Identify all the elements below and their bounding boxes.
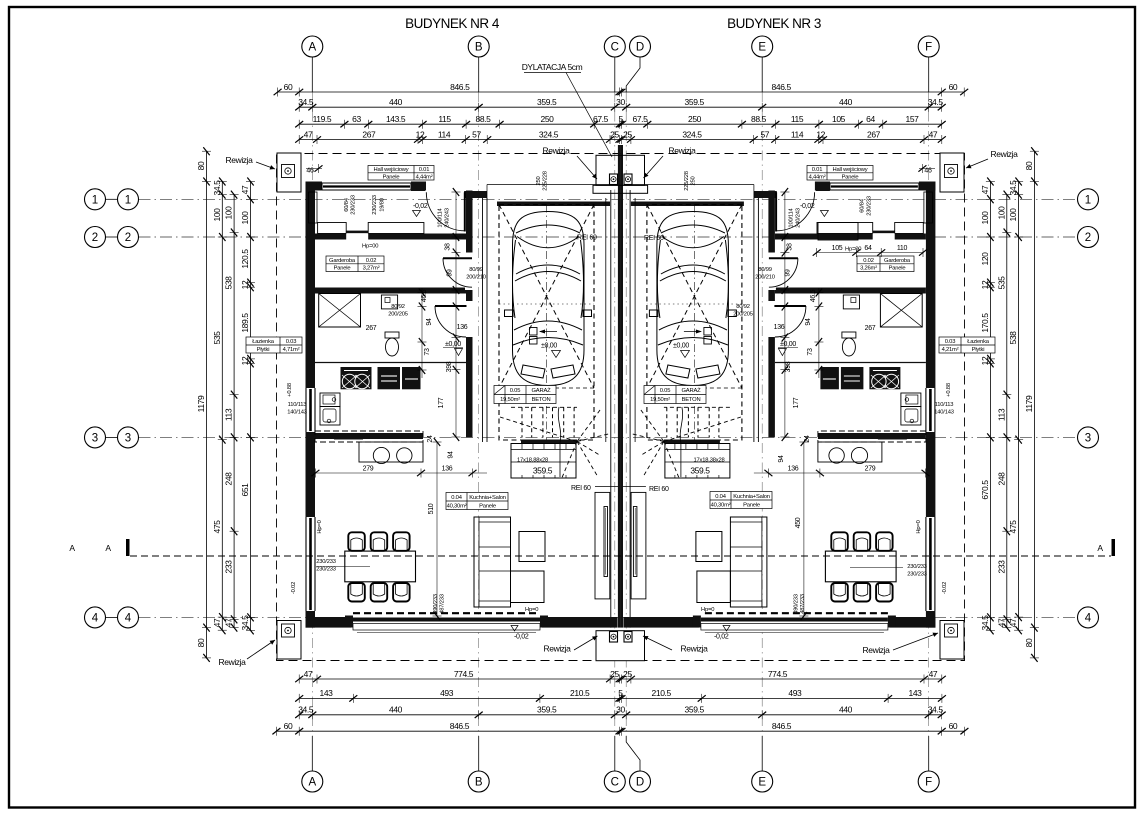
svg-text:12: 12 [816, 129, 825, 139]
svg-text:225/228: 225/228 [543, 171, 549, 191]
svg-text:-0,02: -0,02 [413, 203, 428, 210]
svg-text:250: 250 [688, 114, 702, 124]
svg-text:REI 60: REI 60 [571, 485, 591, 492]
svg-text:225/228: 225/228 [684, 171, 690, 191]
svg-text:Rewizja: Rewizja [544, 644, 572, 654]
svg-text:143: 143 [909, 688, 923, 698]
svg-text:46.5: 46.5 [810, 289, 817, 302]
svg-text:359.5: 359.5 [685, 97, 705, 107]
svg-text:0.05: 0.05 [660, 388, 670, 394]
svg-text:200/205: 200/205 [388, 312, 408, 318]
svg-text:Panele: Panele [842, 175, 859, 181]
svg-text:94: 94 [448, 451, 455, 459]
svg-text:BUDYNEK NR 3: BUDYNEK NR 3 [727, 16, 821, 31]
svg-text:80/99: 80/99 [758, 267, 772, 273]
svg-text:200/205: 200/205 [733, 312, 753, 318]
svg-text:535: 535 [996, 276, 1006, 290]
svg-text:0.04: 0.04 [715, 494, 726, 500]
svg-text:A: A [308, 42, 316, 54]
svg-text:1179: 1179 [1024, 395, 1034, 412]
svg-text:2: 2 [125, 232, 131, 244]
svg-text:Panele: Panele [743, 502, 760, 508]
svg-text:12: 12 [980, 280, 990, 289]
svg-text:5: 5 [618, 688, 623, 698]
svg-text:25: 25 [623, 129, 632, 139]
svg-text:Garderoba: Garderoba [884, 258, 911, 264]
svg-text:100/114: 100/114 [788, 207, 794, 227]
svg-text:25: 25 [610, 669, 619, 679]
svg-text:Panele: Panele [383, 175, 400, 181]
svg-text:100: 100 [996, 206, 1006, 220]
svg-text:100: 100 [212, 208, 222, 222]
svg-text:3: 3 [92, 432, 98, 444]
svg-text:BETON: BETON [532, 397, 551, 403]
svg-text:157: 157 [906, 114, 920, 124]
svg-text:140/143: 140/143 [934, 410, 954, 416]
svg-text:80/92: 80/92 [391, 304, 405, 310]
svg-text:D: D [636, 42, 644, 54]
svg-text:2: 2 [1085, 232, 1091, 244]
svg-text:136: 136 [788, 466, 799, 473]
svg-text:230/233: 230/233 [372, 195, 378, 215]
svg-text:538: 538 [1008, 331, 1018, 345]
svg-text:REI 60: REI 60 [577, 235, 597, 242]
svg-text:17x18,38x28: 17x18,38x28 [694, 458, 725, 464]
svg-text:177: 177 [438, 397, 445, 408]
svg-text:Hp=00: Hp=00 [845, 247, 861, 253]
svg-text:240/243: 240/243 [795, 208, 801, 228]
svg-text:490/233: 490/233 [433, 594, 439, 614]
svg-text:279: 279 [865, 466, 876, 473]
svg-text:+0.88: +0.88 [946, 383, 952, 397]
svg-text:80: 80 [1024, 161, 1034, 170]
svg-text:3,26m²: 3,26m² [860, 266, 877, 272]
svg-text:A: A [69, 543, 75, 553]
svg-text:359.5: 359.5 [533, 466, 553, 476]
svg-text:3,27m²: 3,27m² [363, 266, 380, 272]
svg-text:100: 100 [240, 211, 250, 225]
svg-text:4: 4 [92, 612, 99, 624]
svg-text:1179: 1179 [196, 395, 206, 412]
svg-text:F: F [925, 777, 932, 789]
svg-text:BETON: BETON [682, 397, 701, 403]
svg-text:24: 24 [427, 435, 434, 443]
svg-text:189.5: 189.5 [240, 313, 250, 333]
svg-text:359.5: 359.5 [690, 466, 710, 476]
svg-text:Hp=00: Hp=00 [362, 244, 378, 250]
svg-text:493: 493 [440, 688, 454, 698]
svg-text:143.5: 143.5 [386, 114, 406, 124]
svg-text:47: 47 [224, 618, 234, 627]
svg-text:113: 113 [224, 408, 234, 421]
svg-text:Garderoba: Garderoba [329, 258, 356, 264]
svg-text:230/233: 230/233 [907, 564, 927, 570]
svg-text:0.05: 0.05 [510, 388, 520, 394]
svg-text:774.5: 774.5 [768, 669, 788, 679]
svg-text:40,30m²: 40,30m² [447, 503, 467, 509]
svg-text:510: 510 [428, 503, 435, 514]
svg-text:94: 94 [805, 318, 812, 326]
svg-text:47: 47 [929, 129, 938, 139]
svg-text:64: 64 [866, 114, 875, 124]
svg-text:267: 267 [366, 325, 377, 332]
svg-text:487/233: 487/233 [800, 594, 806, 614]
svg-text:63: 63 [352, 114, 361, 124]
svg-text:19/80: 19/80 [380, 198, 386, 212]
svg-text:99: 99 [785, 269, 792, 277]
svg-text:Łazienka: Łazienka [252, 339, 275, 345]
svg-text:34.5: 34.5 [928, 705, 944, 715]
svg-text:846.5: 846.5 [772, 82, 792, 92]
svg-text:60: 60 [284, 721, 293, 731]
svg-text:88.5: 88.5 [751, 114, 767, 124]
svg-text:Panele: Panele [334, 266, 351, 272]
svg-text:Hall wejściowy: Hall wejściowy [833, 167, 868, 173]
svg-text:GARAŻ: GARAŻ [682, 387, 702, 394]
svg-text:Rewizja: Rewizja [681, 644, 709, 654]
svg-text:398: 398 [785, 361, 792, 372]
svg-text:200/210: 200/210 [466, 275, 486, 281]
svg-text:34.5: 34.5 [298, 705, 314, 715]
svg-text:248: 248 [996, 472, 1006, 486]
svg-text:0.04: 0.04 [451, 495, 462, 501]
svg-text:Panele: Panele [479, 503, 496, 509]
svg-text:4: 4 [125, 612, 132, 624]
svg-text:1: 1 [125, 194, 131, 206]
svg-text:47: 47 [240, 185, 250, 194]
svg-text:60/84: 60/84 [344, 197, 350, 211]
svg-text:80/99: 80/99 [469, 267, 483, 273]
svg-text:279: 279 [363, 466, 374, 473]
svg-text:±0,00: ±0,00 [445, 341, 461, 348]
svg-text:±0,00: ±0,00 [780, 341, 796, 348]
svg-text:267: 267 [865, 325, 876, 332]
svg-text:25: 25 [623, 669, 632, 679]
svg-text:230/233: 230/233 [351, 195, 357, 215]
svg-text:100: 100 [1008, 208, 1018, 222]
svg-text:38: 38 [445, 243, 452, 251]
svg-text:136: 136 [774, 324, 785, 331]
svg-text:60: 60 [949, 721, 958, 731]
svg-text:88.5: 88.5 [476, 114, 492, 124]
svg-text:47: 47 [980, 185, 990, 194]
svg-text:80/92: 80/92 [736, 304, 750, 310]
svg-text:4,44m²: 4,44m² [809, 175, 826, 181]
svg-text:140/143: 140/143 [287, 410, 307, 416]
svg-text:535: 535 [212, 331, 222, 345]
svg-text:490/233: 490/233 [794, 594, 800, 614]
svg-text:100/114: 100/114 [438, 207, 444, 227]
svg-text:0.03: 0.03 [945, 339, 955, 345]
svg-text:230/233: 230/233 [907, 572, 927, 578]
svg-text:80: 80 [196, 161, 206, 170]
svg-text:2: 2 [92, 232, 98, 244]
svg-text:57: 57 [472, 129, 481, 139]
svg-text:24: 24 [804, 435, 811, 443]
svg-text:Łazienka: Łazienka [967, 339, 990, 345]
svg-text:Płytki: Płytki [972, 347, 985, 353]
svg-text:94: 94 [426, 318, 433, 326]
svg-text:E: E [758, 777, 766, 789]
svg-text:38: 38 [787, 243, 794, 251]
svg-text:475: 475 [212, 520, 222, 534]
svg-text:A: A [308, 777, 316, 789]
svg-text:136: 136 [457, 324, 468, 331]
svg-text:-0,02: -0,02 [714, 634, 729, 641]
svg-text:94: 94 [778, 455, 785, 463]
svg-text:Hall wejściowy: Hall wejściowy [374, 167, 409, 173]
svg-text:30: 30 [616, 705, 625, 715]
svg-text:Hp=0: Hp=0 [317, 520, 323, 533]
svg-text:250: 250 [541, 114, 555, 124]
svg-text:3: 3 [125, 432, 131, 444]
svg-text:493: 493 [788, 688, 802, 698]
svg-text:110/113: 110/113 [288, 402, 307, 408]
svg-text:120.5: 120.5 [240, 249, 250, 269]
svg-text:114: 114 [791, 129, 804, 139]
svg-text:4,44m²: 4,44m² [416, 175, 433, 181]
svg-text:774.5: 774.5 [454, 669, 474, 679]
svg-text:19,50m²: 19,50m² [650, 397, 670, 403]
svg-text:-0.02: -0.02 [942, 582, 948, 594]
svg-text:19,50m²: 19,50m² [500, 397, 520, 403]
svg-text:5: 5 [619, 114, 624, 124]
svg-text:440: 440 [389, 705, 403, 715]
svg-text:651: 651 [240, 483, 250, 497]
svg-text:4: 4 [1085, 612, 1092, 624]
svg-text:3: 3 [1085, 432, 1091, 444]
svg-text:Hp=0: Hp=0 [916, 520, 922, 533]
svg-text:Hp=0: Hp=0 [525, 607, 538, 613]
svg-text:Płytki: Płytki [257, 347, 270, 353]
svg-text:-0,02: -0,02 [514, 634, 529, 641]
svg-text:47: 47 [929, 669, 938, 679]
svg-text:Hp=0: Hp=0 [701, 607, 714, 613]
svg-text:Kuchnia+Salon: Kuchnia+Salon [733, 494, 770, 500]
svg-text:230/233: 230/233 [316, 559, 336, 565]
svg-text:Kuchnia+Salon: Kuchnia+Salon [469, 495, 506, 501]
svg-text:440: 440 [839, 97, 853, 107]
svg-text:0.02: 0.02 [863, 258, 873, 264]
svg-text:230/233: 230/233 [316, 567, 336, 573]
svg-text:60/84: 60/84 [860, 198, 866, 212]
svg-text:398: 398 [446, 361, 453, 372]
svg-text:359.5: 359.5 [685, 705, 705, 715]
svg-text:233: 233 [224, 560, 234, 574]
svg-text:250: 250 [536, 176, 542, 185]
svg-text:25: 25 [610, 129, 619, 139]
svg-text:114: 114 [438, 129, 451, 139]
svg-text:487/233: 487/233 [440, 594, 446, 614]
svg-text:34.5: 34.5 [1008, 180, 1018, 196]
svg-text:1: 1 [92, 194, 98, 206]
svg-text:Rewizja: Rewizja [669, 146, 697, 156]
svg-text:+0.88: +0.88 [287, 383, 293, 397]
svg-text:230/233: 230/233 [867, 196, 873, 216]
svg-text:324.5: 324.5 [539, 129, 559, 139]
svg-text:115: 115 [438, 114, 451, 124]
svg-text:Rewizja: Rewizja [543, 146, 571, 156]
svg-text:105: 105 [832, 245, 843, 252]
svg-text:100: 100 [980, 211, 990, 225]
svg-text:359.5: 359.5 [537, 705, 557, 715]
svg-text:34.5: 34.5 [298, 97, 314, 107]
svg-text:233: 233 [996, 560, 1006, 574]
svg-text:Rewizja: Rewizja [219, 657, 247, 667]
svg-text:12: 12 [240, 280, 250, 289]
svg-text:REI 60: REI 60 [649, 486, 669, 493]
svg-text:B: B [475, 42, 483, 54]
svg-text:47: 47 [304, 129, 313, 139]
svg-text:47: 47 [996, 618, 1006, 627]
svg-text:100: 100 [224, 206, 234, 220]
svg-text:4,21m²: 4,21m² [942, 347, 959, 353]
svg-text:A: A [1097, 543, 1103, 553]
svg-text:40,30m²: 40,30m² [711, 502, 731, 508]
svg-text:30: 30 [616, 97, 625, 107]
svg-text:115: 115 [791, 114, 804, 124]
svg-text:GARAŻ: GARAŻ [532, 387, 552, 394]
svg-text:C: C [611, 777, 619, 789]
svg-text:60: 60 [949, 82, 958, 92]
svg-text:177: 177 [793, 397, 800, 408]
svg-text:34.5: 34.5 [240, 615, 250, 631]
svg-text:±0,00: ±0,00 [541, 343, 557, 350]
svg-text:1: 1 [1085, 194, 1091, 206]
svg-text:REI 60: REI 60 [644, 235, 664, 242]
svg-text:-0.02: -0.02 [291, 582, 297, 594]
svg-text:Panele: Panele [889, 266, 906, 272]
svg-text:119.5: 119.5 [313, 114, 332, 124]
svg-text:267: 267 [362, 129, 376, 139]
svg-text:64: 64 [864, 245, 872, 252]
svg-text:E: E [758, 42, 766, 54]
svg-text:80: 80 [1024, 638, 1034, 647]
svg-text:105: 105 [832, 114, 846, 124]
svg-text:47: 47 [304, 669, 313, 679]
svg-text:60: 60 [284, 82, 293, 92]
svg-text:12: 12 [416, 129, 425, 139]
svg-text:120: 120 [980, 252, 990, 266]
svg-text:34.5: 34.5 [928, 97, 944, 107]
svg-text:80: 80 [196, 638, 206, 647]
svg-text:DYLATACJA 5cm: DYLATACJA 5cm [522, 62, 583, 72]
svg-text:BUDYNEK NR 4: BUDYNEK NR 4 [405, 16, 500, 31]
svg-text:210.5: 210.5 [652, 688, 672, 698]
svg-text:Rewizja: Rewizja [991, 149, 1019, 159]
svg-text:67.5: 67.5 [593, 114, 609, 124]
svg-text:250: 250 [691, 176, 697, 185]
svg-text:±0,00: ±0,00 [673, 343, 689, 350]
svg-text:248: 248 [224, 472, 234, 486]
svg-text:538: 538 [224, 276, 234, 290]
svg-text:99: 99 [447, 269, 454, 277]
svg-text:113: 113 [996, 408, 1006, 421]
svg-text:440: 440 [389, 97, 403, 107]
svg-text:136: 136 [442, 466, 453, 473]
svg-text:846.5: 846.5 [450, 721, 470, 731]
svg-text:846.5: 846.5 [450, 82, 470, 92]
svg-text:D: D [636, 777, 644, 789]
svg-text:B: B [475, 777, 483, 789]
svg-text:57: 57 [760, 129, 769, 139]
svg-text:440: 440 [839, 705, 853, 715]
svg-text:670.5: 670.5 [980, 480, 990, 500]
svg-text:C: C [611, 42, 619, 54]
svg-text:110: 110 [897, 245, 908, 252]
svg-text:170.5: 170.5 [980, 313, 990, 333]
svg-text:240/243: 240/243 [445, 208, 451, 228]
svg-text:73: 73 [424, 348, 431, 356]
svg-text:200/210: 200/210 [755, 275, 775, 281]
svg-text:12: 12 [240, 356, 250, 365]
svg-text:34.5: 34.5 [980, 615, 990, 631]
svg-text:0.03: 0.03 [286, 339, 296, 345]
svg-text:0.01: 0.01 [419, 167, 429, 173]
svg-text:450: 450 [795, 517, 802, 528]
svg-text:0.02: 0.02 [366, 258, 376, 264]
svg-text:F: F [925, 42, 932, 54]
svg-text:210.5: 210.5 [570, 688, 590, 698]
svg-text:46.5: 46.5 [421, 289, 428, 302]
svg-text:A: A [105, 543, 111, 553]
svg-text:12: 12 [980, 356, 990, 365]
svg-text:324.5: 324.5 [682, 129, 702, 139]
svg-text:359.5: 359.5 [537, 97, 557, 107]
svg-text:67.5: 67.5 [633, 114, 649, 124]
svg-text:110/113: 110/113 [935, 402, 954, 408]
svg-text:47: 47 [212, 618, 222, 627]
svg-text:846.5: 846.5 [772, 721, 792, 731]
svg-text:0.01: 0.01 [812, 167, 822, 173]
svg-text:34.5: 34.5 [212, 180, 222, 196]
svg-text:-0,02: -0,02 [800, 203, 815, 210]
svg-text:73: 73 [807, 348, 814, 356]
svg-text:267: 267 [867, 129, 881, 139]
svg-text:143: 143 [320, 688, 334, 698]
svg-text:4,71m²: 4,71m² [283, 347, 300, 353]
svg-text:Rewizja: Rewizja [863, 645, 891, 655]
svg-text:17x18,88x28: 17x18,88x28 [517, 458, 548, 464]
svg-text:Rewizja: Rewizja [226, 155, 254, 165]
